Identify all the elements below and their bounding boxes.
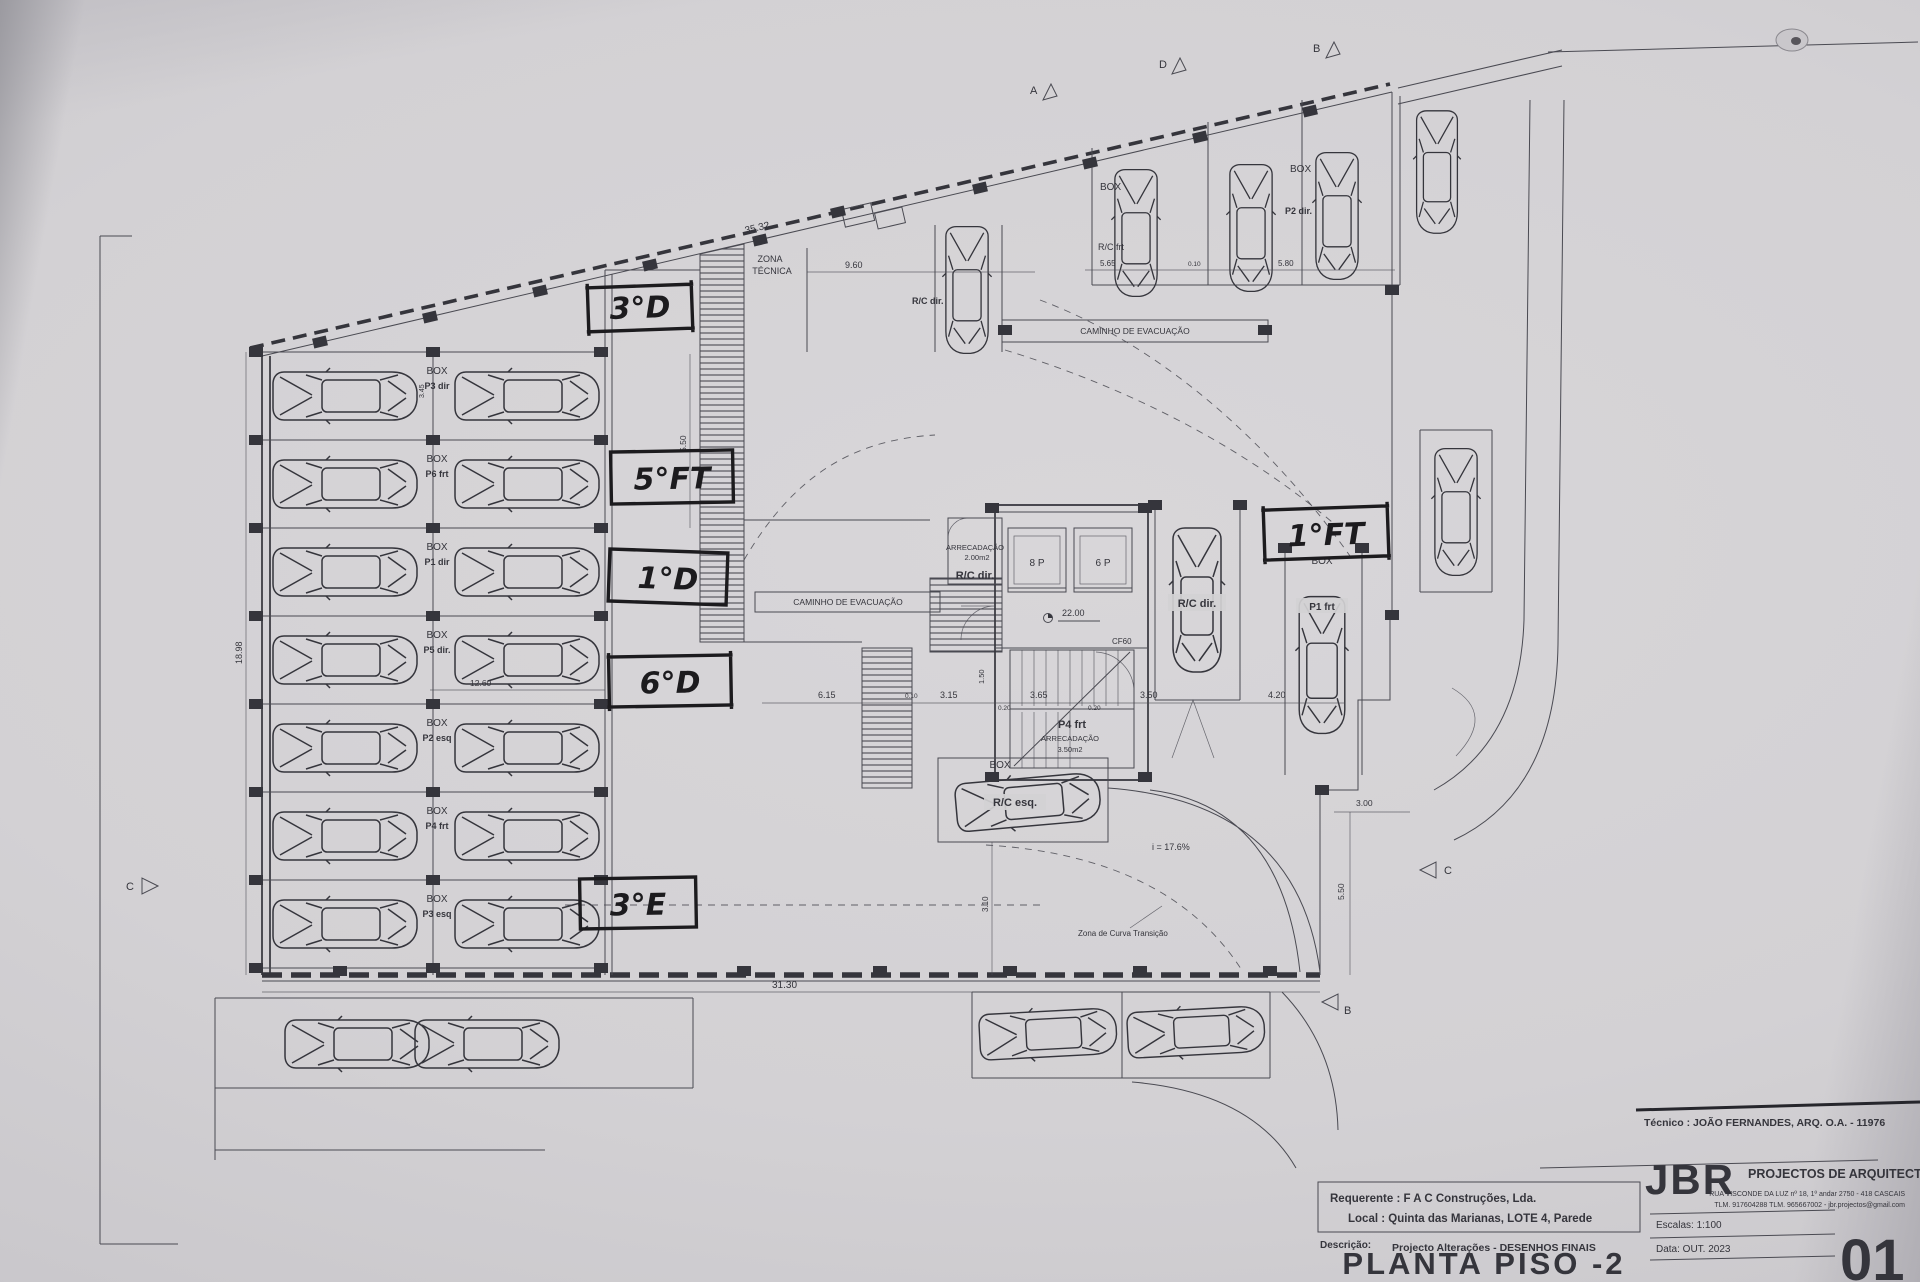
level-value: 22.00 (1062, 608, 1085, 618)
escala-line: Escalas: 1:100 (1656, 1220, 1722, 1231)
dim: 5.65 (1100, 259, 1116, 268)
arrecadacao-label: ARRECADAÇÃO (946, 543, 1004, 552)
box-label: BOX (426, 454, 447, 465)
car (1126, 1002, 1265, 1062)
ramp-hatches (700, 244, 1002, 788)
rc-esq-label: R/C esq. (993, 797, 1037, 809)
hand-note-3e: 3°E (610, 888, 667, 924)
data-line: Data: OUT. 2023 (1656, 1244, 1731, 1255)
stall-label: P2 esq (422, 733, 451, 743)
caminho-evacuacao-label: CAMINHO DE EVACUAÇÃO (1080, 326, 1190, 336)
box-label: BOX (989, 760, 1010, 771)
car (978, 1004, 1117, 1064)
curve-zone-label: Zona de Curva Transição (1078, 929, 1168, 938)
car (273, 808, 417, 864)
car (273, 544, 417, 600)
door-cf60-label: CF60 (1112, 637, 1132, 646)
car (455, 368, 599, 424)
section-marker-c-left: C (126, 881, 134, 893)
section-marker-c-right: C (1444, 865, 1452, 877)
caminho-evacuacao-label: CAMINHO DE EVACUAÇÃO (793, 597, 903, 607)
structural-columns (249, 105, 1399, 976)
photo-background: BOX P3 dir BOX P6 frt BOX P1 dir BOX P5 … (0, 0, 1920, 1282)
car (942, 227, 991, 354)
dim: 0.10 (905, 693, 918, 700)
elevator-6p-label: 6 P (1095, 558, 1110, 569)
p2-dir-label: P2 dir. (1285, 206, 1312, 216)
car (455, 896, 599, 952)
car (1295, 597, 1348, 734)
car (285, 1016, 429, 1072)
dim-right-v: 5.50 (1336, 883, 1346, 900)
dim: 0.20 (998, 705, 1011, 712)
section-marker-b-bottom: B (1344, 1005, 1351, 1017)
dim: 3.65 (1030, 690, 1048, 700)
section-marker-b: B (1313, 43, 1320, 55)
firm-name: PROJECTOS DE ARQUITECTURA (1748, 1167, 1920, 1181)
car (1431, 449, 1480, 576)
blueprint-floor-plan: BOX P3 dir BOX P6 frt BOX P1 dir BOX P5 … (0, 0, 1920, 1282)
dim: 0.20 (1088, 705, 1101, 712)
firm-contact: TLM. 917604288 TLM. 965667002 - jbr.proj… (1714, 1202, 1905, 1209)
tecnico-line: Técnico : JOÃO FERNANDES, ARQ. O.A. - 11… (1644, 1116, 1885, 1129)
p1-frt-label: P1 frt (1309, 602, 1335, 613)
dim-top-slant: 35.32 (744, 220, 771, 236)
dim-bottom-width: 31.30 (772, 980, 797, 991)
rc-frt-label: R/C frt (1098, 242, 1124, 252)
arrecadacao2-label: ARRECADAÇÃO (1041, 734, 1099, 743)
car (1226, 165, 1275, 292)
box-label: BOX (426, 366, 447, 377)
top-stalls: R/C dir. BOX R/C frt BOX P2 dir. 5.65 0.… (912, 96, 1461, 353)
hand-note-5ft: 5°FT (633, 461, 713, 497)
dim-row-width: 12.60 (470, 678, 492, 688)
stall-label: P3 dir (424, 381, 450, 391)
box-label: BOX (426, 718, 447, 729)
box-label: BOX (426, 806, 447, 817)
firm-address: RUA VISCONDE DA LUZ nº 18, 1º andar 2750… (1709, 1191, 1905, 1198)
dim-stall-depth: 3.45 (419, 384, 426, 398)
dim-low: 3.10 (981, 896, 990, 912)
car (273, 368, 417, 424)
stall-label: P5 dir. (423, 645, 450, 655)
car (273, 632, 417, 688)
dim: 4.20 (1268, 690, 1286, 700)
stall-label: P1 dir (424, 557, 450, 567)
zona-tecnica-label: ZONA (757, 254, 782, 264)
hand-note-1ft: 1°FT (1287, 517, 1368, 555)
sheet-number: 01 (1840, 1228, 1905, 1282)
box-label: BOX (1290, 164, 1311, 175)
car (455, 544, 599, 600)
stall-label: P4 frt (425, 821, 448, 831)
dim: 0.10 (1188, 261, 1201, 268)
rc-dir-label: R/C dir. (956, 570, 995, 582)
dim: 3.50 (1140, 690, 1158, 700)
rc-dir-top-label: R/C dir. (912, 296, 944, 306)
corridors: CAMINHO DE EVACUAÇÃO CAMINHO DE EVACUAÇÃ… (755, 320, 1268, 612)
dim: 5.80 (1278, 259, 1294, 268)
box-label: BOX (426, 542, 447, 553)
car (273, 720, 417, 776)
section-marker-d: D (1159, 59, 1167, 71)
section-markers: A D B C C B (126, 42, 1452, 1017)
car (1312, 153, 1361, 280)
punch-hole-icon (1791, 37, 1801, 45)
dim: 3.15 (940, 690, 958, 700)
dim: 6.15 (818, 690, 836, 700)
bottom-parking (215, 992, 1338, 1168)
rc-dir-stall-label: R/C dir. (1178, 598, 1217, 610)
car (1413, 111, 1461, 233)
section-marker-a: A (1030, 85, 1038, 97)
local-line: Local : Quinta das Marianas, LOTE 4, Par… (1348, 1213, 1592, 1225)
dim-top-inner: 9.60 (845, 260, 863, 270)
car (273, 456, 417, 512)
left-parking-block: BOX P3 dir BOX P6 frt BOX P1 dir BOX P5 … (262, 270, 700, 975)
elevator-8p-label: 8 P (1029, 558, 1044, 569)
requerente-line: Requerente : F A C Construções, Lda. (1330, 1193, 1536, 1205)
dim-core: 1.50 (977, 669, 986, 684)
hand-note-3d: 3°D (609, 290, 671, 327)
slope-label: i = 17.6% (1152, 842, 1190, 852)
hand-note-6d: 6°D (639, 665, 700, 701)
dim-right-h: 3.00 (1356, 798, 1373, 808)
car (415, 1016, 559, 1072)
car (273, 896, 417, 952)
car (455, 456, 599, 512)
zona-tecnica-label2: TÉCNICA (752, 266, 792, 276)
box-label: BOX (426, 630, 447, 641)
hand-note-1d: 1°D (637, 561, 699, 598)
title-block: Técnico : JOÃO FERNANDES, ARQ. O.A. - 11… (1318, 1102, 1920, 1282)
p4-frt-label: P4 frt (1058, 719, 1086, 731)
dim-left-height: 18.98 (234, 641, 244, 664)
stall-label: P6 frt (425, 469, 448, 479)
arrecadacao-area: 2.00m2 (964, 553, 989, 562)
stall-label: P3 esq (422, 909, 451, 919)
box-label: BOX (1100, 182, 1121, 193)
garage-outline (250, 84, 1400, 981)
box-label: BOX (426, 894, 447, 905)
sheet-title: PLANTA PISO -2 (1342, 1246, 1625, 1281)
car (455, 720, 599, 776)
car (455, 808, 599, 864)
arrecadacao2-area: 3.50m2 (1057, 745, 1082, 754)
